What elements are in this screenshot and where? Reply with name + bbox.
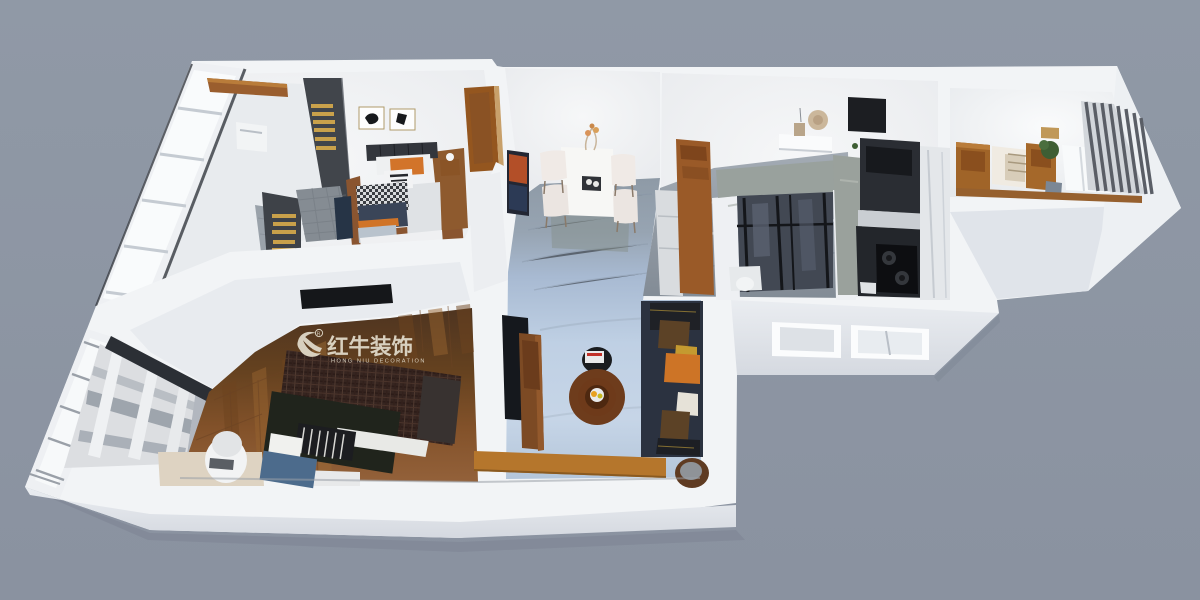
svg-text:R: R: [317, 332, 321, 338]
svg-text:红牛装饰: 红牛装饰: [327, 334, 413, 359]
svg-text:HONG NIU DECORATION: HONG NIU DECORATION: [331, 359, 426, 365]
